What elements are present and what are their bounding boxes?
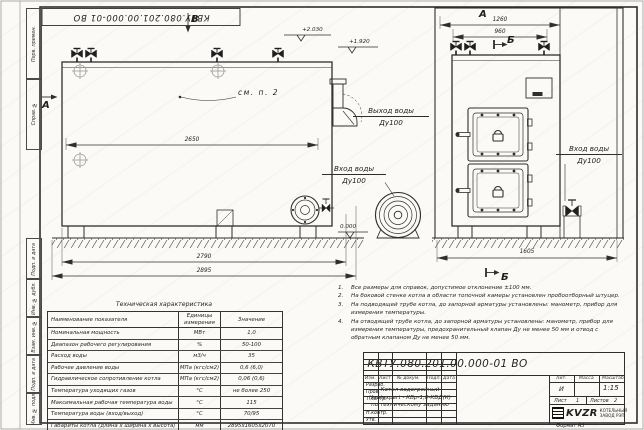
cell-name: Рабочее давление воды bbox=[48, 363, 179, 374]
cell-value: 115 bbox=[221, 397, 282, 408]
col-header-units: Единицы измерения bbox=[179, 312, 221, 327]
tb-lit-header: Лит. bbox=[556, 376, 567, 381]
note-number: 4. bbox=[336, 318, 351, 343]
water-inlet-flange bbox=[376, 193, 421, 239]
valve-icon bbox=[539, 42, 550, 56]
note-text: На отводящей трубе котла, до запорной ар… bbox=[351, 318, 628, 343]
cell-units: м3/ч bbox=[179, 351, 221, 362]
boiler-side-view bbox=[52, 49, 421, 249]
table-row: Максимальная рабочая температура воды °С… bbox=[48, 397, 282, 409]
table-row: Номинальная мощность МВт 1,0 bbox=[48, 328, 282, 340]
cell-units: МПа (кгс/см2) bbox=[179, 374, 221, 385]
table-row: Диапазон рабочего регулирования % 50-100 bbox=[48, 340, 282, 352]
note-text: На боковой стенке котла в области топочн… bbox=[351, 292, 628, 300]
col-header-name: Наименование показателя bbox=[48, 312, 179, 327]
callout-see-note-2: см. п. 2 bbox=[238, 88, 279, 97]
tb-approval-row bbox=[364, 403, 456, 410]
tb-header-podp: Подп. bbox=[427, 376, 441, 381]
inlet-left-label-text: Вход воды bbox=[322, 164, 386, 175]
tb-sheets-value: 2 bbox=[614, 398, 617, 404]
note-number: 3. bbox=[336, 301, 351, 318]
table-row: Гидравлическое сопротивление котла МПа (… bbox=[48, 374, 282, 386]
cell-units: % bbox=[179, 340, 221, 351]
table-row: Габариты котла (длина х ширина х высота)… bbox=[48, 420, 282, 430]
frame-field-perv-primen: Перв. примен. bbox=[26, 8, 42, 80]
note-text: На подводящей трубе котла, до запорной а… bbox=[351, 301, 628, 318]
note-text: Все размеры для справок, допустимое откл… bbox=[351, 284, 628, 292]
frame-field-inv-podl: Инв. № подл. bbox=[26, 392, 42, 425]
cell-value: 0,6 (6,0) bbox=[221, 363, 282, 374]
tb-approval-row: Разраб. bbox=[364, 382, 456, 389]
tech-table-header: Наименование показателя Единицы измерени… bbox=[48, 312, 282, 328]
ground-hatch bbox=[432, 238, 624, 248]
cell-units: МПа (кгс/см2) bbox=[179, 363, 221, 374]
frame-field-podp-data: Подп. и дата bbox=[26, 238, 42, 280]
cell-name: Номинальная мощность bbox=[48, 328, 179, 339]
tb-approval-row: Утв. bbox=[364, 417, 456, 424]
lifting-point-icon bbox=[72, 152, 88, 168]
frame-field-podp-data2: Подп. и дата bbox=[26, 354, 42, 394]
frame-field-inv-dubl: Инв. № дубл. bbox=[26, 278, 42, 318]
kvzr-logo-icon bbox=[552, 407, 564, 419]
inlet-right-label: Вход воды Ду100 bbox=[556, 144, 622, 165]
boiler-front-view bbox=[432, 8, 624, 248]
burner-flange bbox=[291, 196, 334, 224]
tb-approval-row: Т.контр. bbox=[364, 396, 456, 403]
lifting-point-icon bbox=[72, 63, 88, 79]
elevation-flue: +1.920 bbox=[349, 39, 370, 45]
cell-name: Гидравлическое сопротивление котла bbox=[48, 374, 179, 385]
table-row: Температура уходящих газов °С не более 2… bbox=[48, 386, 282, 398]
elevation-top: +2.030 bbox=[302, 27, 323, 33]
section-label-b-bottom: Б bbox=[501, 272, 509, 283]
tb-sheet-label: Лист bbox=[554, 398, 567, 404]
cell-value: 0,06 (0,6) bbox=[221, 374, 282, 385]
outlet-label: Выход воды Ду100 bbox=[353, 106, 429, 127]
inlet-right-label-dn: Ду100 bbox=[556, 155, 622, 165]
note-item: 2. На боковой стенке котла в области топ… bbox=[336, 292, 628, 300]
note-number: 1. bbox=[336, 284, 351, 292]
dim-1605: 1605 bbox=[487, 249, 567, 255]
cell-units: °С bbox=[179, 409, 221, 420]
boiler-door-lower bbox=[456, 164, 533, 217]
note-item: 3. На подводящей трубе котла, до запорно… bbox=[336, 301, 628, 318]
tech-table-body: Номинальная мощность МВт 1,0 Диапазон ра… bbox=[48, 328, 282, 430]
valve-icon bbox=[212, 49, 223, 63]
table-row: Расход воды м3/ч 35 bbox=[48, 351, 282, 363]
tb-approval-row: Н.контр. bbox=[364, 410, 456, 417]
cell-value: 70/95 bbox=[221, 409, 282, 420]
tb-scale-header: Масштаб bbox=[602, 376, 624, 381]
tb-header-izm: Изм. bbox=[365, 376, 376, 381]
cell-value: 35 bbox=[221, 351, 282, 362]
dim-1260: 1260 bbox=[465, 17, 535, 23]
note-number: 2. bbox=[336, 292, 351, 300]
tb-sheets-label: Листов bbox=[590, 398, 609, 404]
tb-sheet-value: 1 bbox=[576, 398, 579, 404]
cell-value: не более 250 bbox=[221, 386, 282, 397]
note-item: 1. Все размеры для справок, допустимое о… bbox=[336, 284, 628, 292]
elevation-marks bbox=[284, 35, 378, 238]
cell-units: °С bbox=[179, 386, 221, 397]
tb-header-data: Дата bbox=[443, 376, 455, 381]
cell-units: °С bbox=[179, 397, 221, 408]
valve-icon bbox=[86, 49, 97, 63]
tb-scale-value: 1:15 bbox=[603, 384, 619, 392]
elevation-ground: 0.000 bbox=[340, 224, 356, 230]
dim-960: 960 bbox=[465, 29, 535, 35]
notes-list: 1. Все размеры для справок, допустимое о… bbox=[336, 284, 628, 343]
top-stamp-text: КВТУ.080.201.00.000-01 ВО bbox=[73, 12, 210, 22]
boiler-door-upper bbox=[456, 108, 533, 161]
outlet-label-text: Выход воды bbox=[353, 106, 429, 117]
inlet-left-label: Вход воды Ду100 bbox=[322, 164, 386, 185]
view-label-v: В bbox=[191, 14, 199, 25]
cell-units: мм bbox=[179, 420, 221, 430]
frame-field-sprav-no: Справ. № bbox=[26, 78, 42, 150]
ground-hatch bbox=[52, 238, 364, 248]
cell-value: 50-100 bbox=[221, 340, 282, 351]
inlet-left-label-dn: Ду100 bbox=[322, 175, 386, 185]
cell-name: Температура воды (вход/выход) bbox=[48, 409, 179, 420]
tb-lit-value: И bbox=[559, 385, 564, 393]
tech-table-title: Техническая характеристика bbox=[47, 301, 281, 308]
tb-approval-row: Пров. bbox=[364, 389, 456, 396]
cell-name: Максимальная рабочая температура воды bbox=[48, 397, 179, 408]
inlet-valve bbox=[563, 200, 581, 238]
tech-table: Наименование показателя Единицы измерени… bbox=[47, 311, 283, 430]
dim-2650: 2650 bbox=[152, 137, 232, 143]
drawing-sheet: КВТУ.080.201.00.000-01 ВО Перв. примен. … bbox=[0, 0, 644, 430]
valve-icon bbox=[72, 49, 83, 63]
format-label: Формат А3 bbox=[556, 423, 584, 429]
table-row: Температура воды (вход/выход) °С 70/95 bbox=[48, 409, 282, 421]
valve-icon bbox=[465, 42, 476, 56]
kvzr-logo-text: KVZR bbox=[566, 408, 598, 419]
col-header-value: Значение bbox=[221, 312, 282, 327]
dim-2895: 2895 bbox=[164, 268, 244, 274]
tb-header-docum: № докум. bbox=[397, 376, 420, 381]
cell-name: Диапазон рабочего регулирования bbox=[48, 340, 179, 351]
cell-value: 2895х1605х2070 bbox=[221, 420, 282, 430]
kvzr-logo-subtitle: КОТЕЛЬНЫЙ ЗАВОД РЭП bbox=[600, 408, 627, 418]
view-label-a-left: А bbox=[42, 100, 50, 111]
table-row: Рабочее давление воды МПа (кгс/см2) 0,6 … bbox=[48, 363, 282, 375]
section-label-b-top: Б bbox=[507, 35, 515, 46]
tb-mass-header: Масса bbox=[579, 376, 594, 381]
lifting-point-icon bbox=[210, 63, 226, 79]
cell-units: МВт bbox=[179, 328, 221, 339]
kvzr-logo: KVZR КОТЕЛЬНЫЙ ЗАВОД РЭП bbox=[552, 404, 622, 422]
valve-icon bbox=[273, 49, 284, 63]
cell-name: Габариты котла (длина х ширина х высота) bbox=[48, 420, 179, 430]
frame-field-vzam-inv: Взам. инв. № bbox=[26, 316, 42, 356]
cell-value: 1,0 bbox=[221, 328, 282, 339]
tb-header-list: Лист bbox=[379, 376, 391, 381]
top-stamp: КВТУ.080.201.00.000-01 ВО bbox=[42, 8, 240, 26]
control-panel bbox=[526, 78, 552, 98]
dim-2790: 2790 bbox=[164, 254, 244, 260]
title-block: Изм. Лист № докум. Подп. Дата Разраб.Про… bbox=[363, 352, 625, 425]
outlet-label-dn: Ду100 bbox=[353, 117, 429, 127]
cell-name: Расход воды bbox=[48, 351, 179, 362]
valve-icon bbox=[451, 42, 462, 56]
inlet-right-label-text: Вход воды bbox=[556, 144, 622, 155]
cell-name: Температура уходящих газов bbox=[48, 386, 179, 397]
note-item: 4. На отводящей трубе котла, до запорной… bbox=[336, 318, 628, 343]
